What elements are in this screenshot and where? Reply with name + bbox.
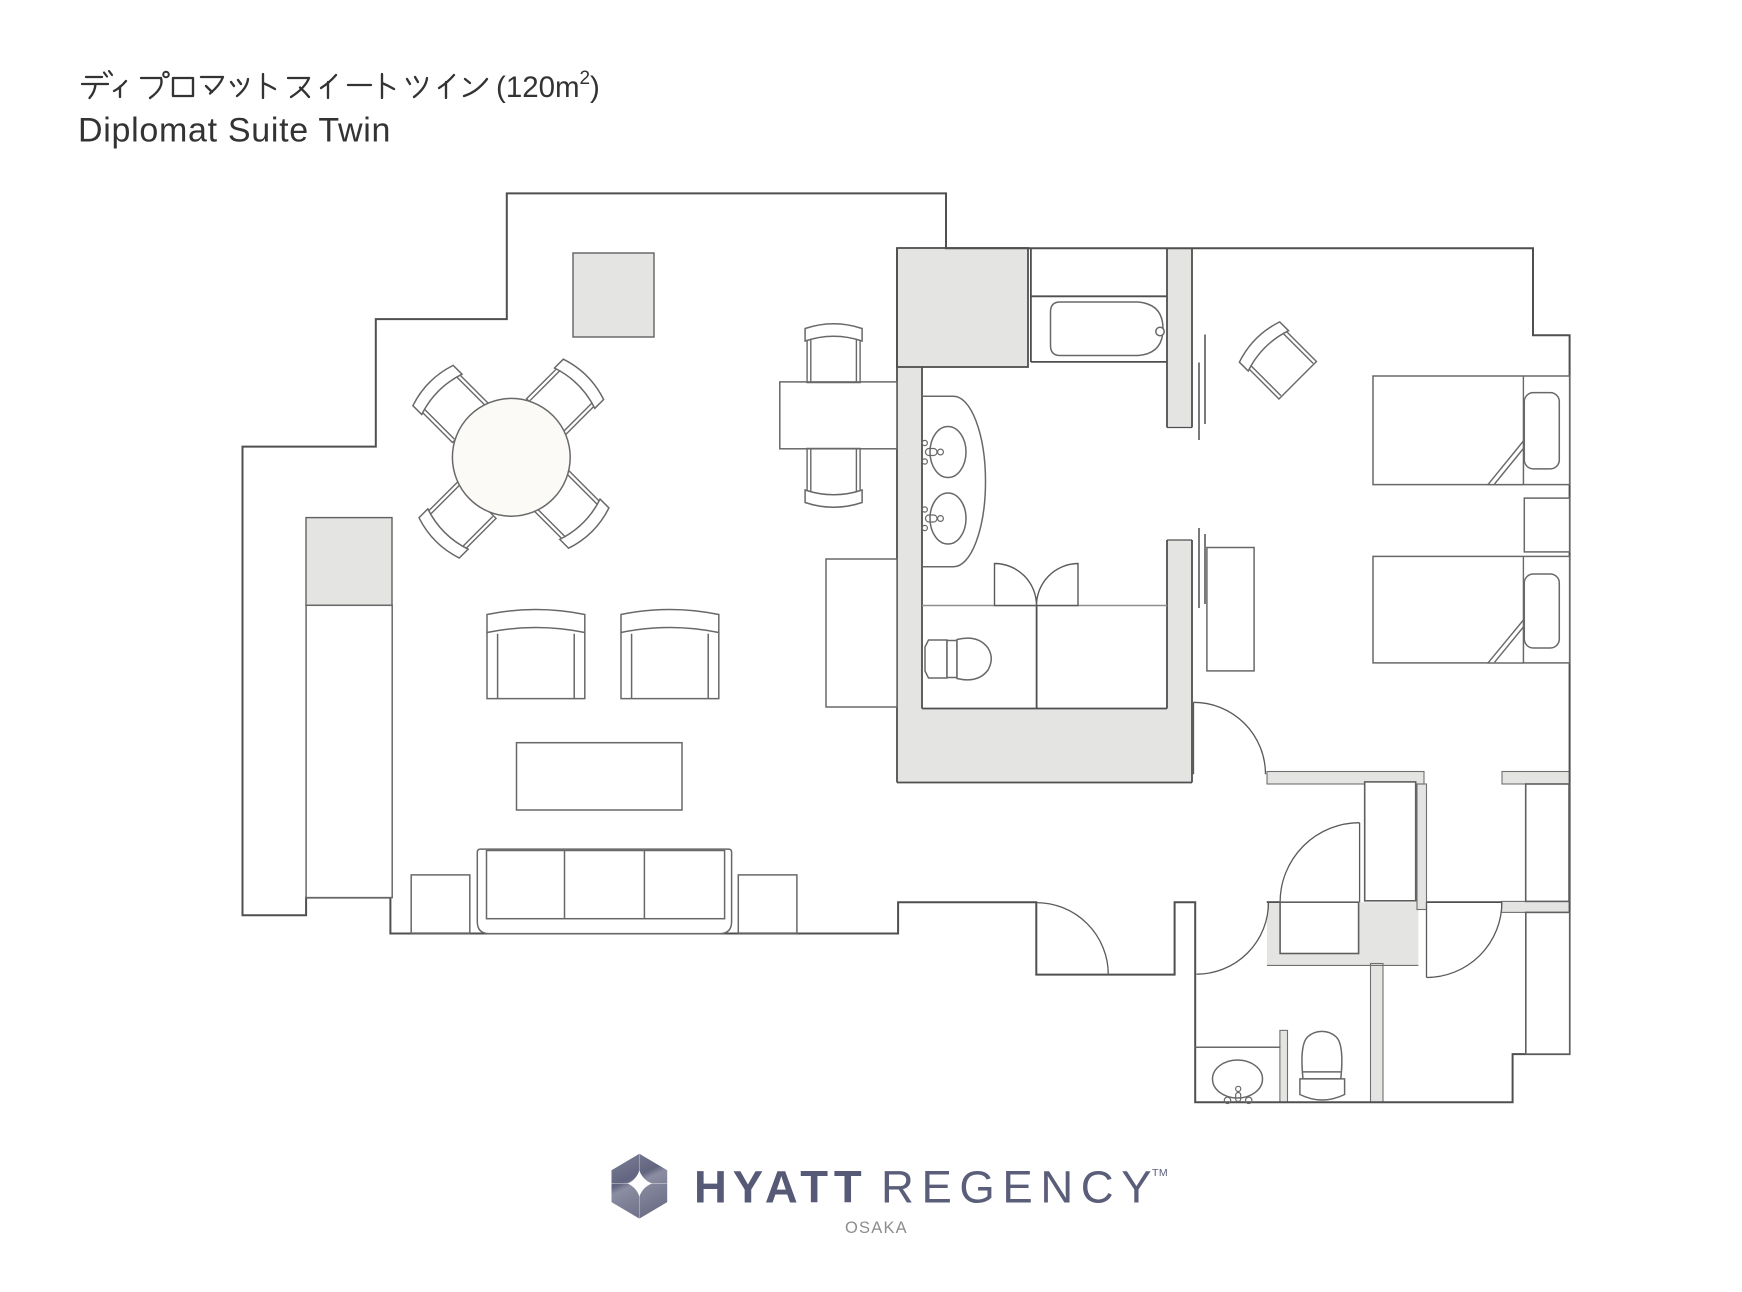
svg-text:(120m: (120m bbox=[496, 71, 580, 104]
svg-text:REGENCY: REGENCY bbox=[881, 1162, 1159, 1213]
svg-text:2: 2 bbox=[580, 68, 591, 89]
svg-text:TM: TM bbox=[1152, 1167, 1168, 1179]
svg-text:OSAKA: OSAKA bbox=[845, 1219, 908, 1237]
svg-text:Diplomat Suite Twin: Diplomat Suite Twin bbox=[78, 112, 391, 150]
svg-text:): ) bbox=[590, 71, 600, 104]
svg-text:HYATT: HYATT bbox=[694, 1162, 868, 1213]
